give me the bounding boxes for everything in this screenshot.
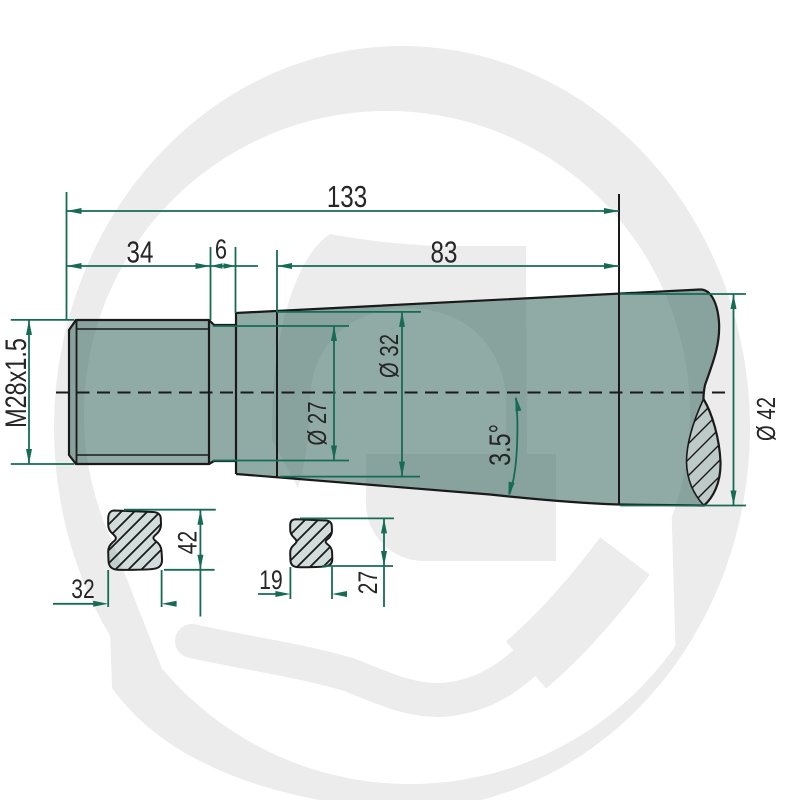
svg-text:34: 34 (127, 235, 154, 270)
svg-text:19: 19 (259, 566, 282, 596)
svg-text:133: 133 (327, 179, 367, 214)
svg-text:3.5°: 3.5° (483, 424, 516, 466)
svg-text:M28x1.5: M28x1.5 (0, 338, 33, 428)
svg-text:42: 42 (173, 531, 203, 554)
svg-text:Ø 42: Ø 42 (752, 397, 781, 441)
svg-text:27: 27 (354, 571, 384, 594)
svg-text:32: 32 (71, 575, 94, 605)
svg-text:6: 6 (215, 234, 227, 265)
svg-text:Ø 32: Ø 32 (375, 334, 404, 378)
svg-text:Ø 27: Ø 27 (303, 402, 332, 446)
svg-text:83: 83 (431, 235, 458, 270)
